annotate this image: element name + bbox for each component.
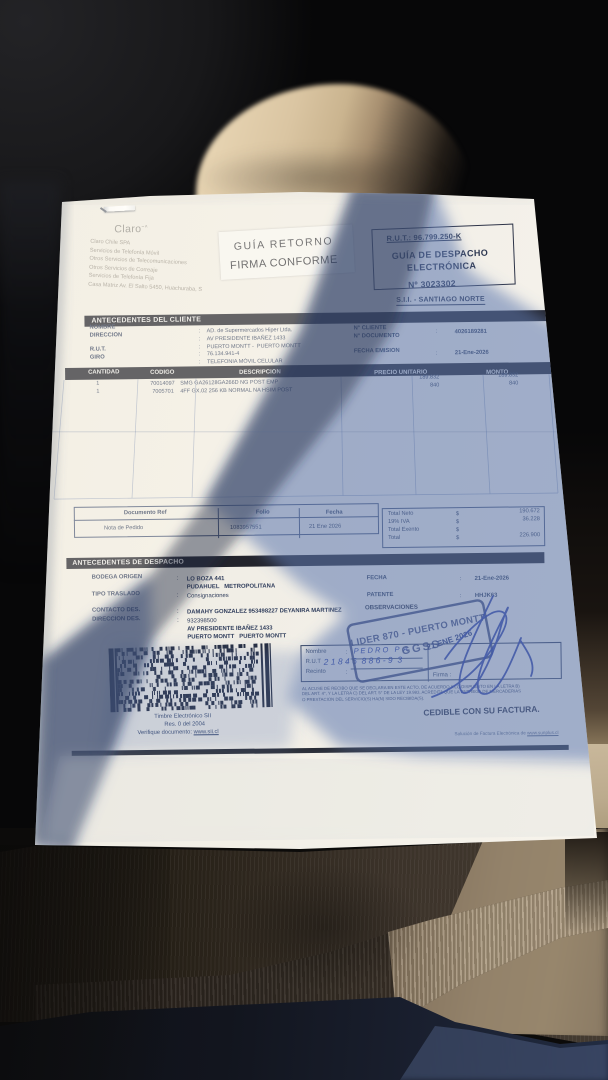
svg-text:GGSS: GGSS xyxy=(401,638,442,657)
